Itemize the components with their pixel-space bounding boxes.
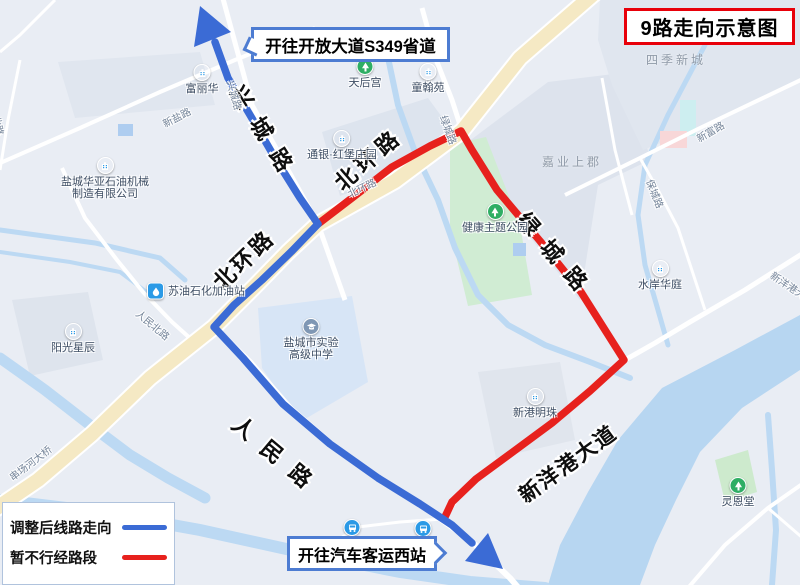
decor-rect [118, 124, 133, 136]
tree-icon [730, 477, 747, 494]
river-xinyanggang [548, 315, 800, 585]
poi-盐城华亚石油机械[interactable]: 盐城华亚石油机械制造有限公司 [61, 157, 149, 200]
map-canvas[interactable]: 兴城路北环路北环路绿城路人民路新洋港大道新盐路北路兴城路北环路绿城路人民北路串场… [0, 0, 800, 585]
poi-label: 童翰苑 [412, 82, 445, 94]
poi-苏油石化加油站[interactable]: 苏油石化加油站 [147, 283, 245, 300]
poi-健康主题公园[interactable]: 健康主题公园 [462, 203, 528, 234]
building-icon [97, 157, 114, 174]
callout-north: 开往开放大道S349省道 [251, 27, 450, 62]
poi-label: 新港明珠 [513, 407, 557, 419]
building-icon [420, 63, 437, 80]
legend-label-adjusted: 调整后线路走向 [10, 517, 122, 538]
poi-童翰苑[interactable]: 童翰苑 [412, 63, 445, 94]
tree-icon [487, 203, 504, 220]
poi-label: 富丽华 [186, 83, 219, 95]
building-icon [194, 64, 211, 81]
school-icon [303, 318, 320, 335]
poi-阳光星辰[interactable]: 阳光星辰 [51, 323, 95, 354]
callout-north-text: 开往开放大道S349省道 [265, 33, 436, 57]
legend-swatch-red [122, 555, 167, 560]
building-icon [65, 323, 82, 340]
poi-label: 天后宫 [349, 77, 382, 89]
bus-icon [344, 519, 361, 536]
poi-label: 盐城华亚石油机械制造有限公司 [61, 176, 149, 200]
title-text: 9路走向示意图 [640, 12, 778, 41]
poi-label: 通银·红堡庄园 [307, 149, 377, 161]
callout-south: 开往汽车客运西站 [287, 536, 437, 571]
poi-水岸华庭[interactable]: 水岸华庭 [638, 260, 682, 291]
building-icon [652, 260, 669, 277]
poi-label: 阳光星辰 [51, 342, 95, 354]
page-title: 9路走向示意图 [624, 8, 795, 45]
poi-label: 健康主题公园 [462, 222, 528, 234]
decor-rect [513, 243, 526, 256]
minor [0, 0, 55, 52]
building-icon [333, 130, 350, 147]
poi-label: 盐城市实验高级中学 [284, 337, 339, 361]
legend-row-skipped: 暂不行经路段 [10, 542, 168, 572]
poi-label: 灵恩堂 [722, 496, 755, 508]
poi-灵恩堂[interactable]: 灵恩堂 [722, 477, 755, 508]
callout-south-text: 开往汽车客运西站 [298, 542, 426, 566]
base-map [0, 0, 800, 585]
poi-label: 水岸华庭 [638, 279, 682, 291]
legend-row-adjusted: 调整后线路走向 [10, 512, 168, 542]
poi-富丽华[interactable]: 富丽华 [186, 64, 219, 95]
poi-天后宫[interactable]: 天后宫 [349, 58, 382, 89]
poi-bus-station[interactable] [415, 520, 432, 537]
legend-label-skipped: 暂不行经路段 [10, 547, 122, 568]
gas-pump-icon [147, 283, 164, 300]
legend-swatch-blue [122, 525, 167, 530]
poi-新港明珠[interactable]: 新港明珠 [513, 388, 557, 419]
poi-盐城市实验[interactable]: 盐城市实验高级中学 [284, 318, 339, 361]
bus-icon [415, 520, 432, 537]
poi-bus-station[interactable] [344, 519, 361, 536]
canal-east-2 [768, 415, 776, 585]
legend: 调整后线路走向 暂不行经路段 [2, 502, 175, 585]
poi-通银·红堡庄园[interactable]: 通银·红堡庄园 [307, 130, 377, 161]
building-icon [527, 388, 544, 405]
poi-label: 苏油石化加油站 [168, 285, 245, 297]
